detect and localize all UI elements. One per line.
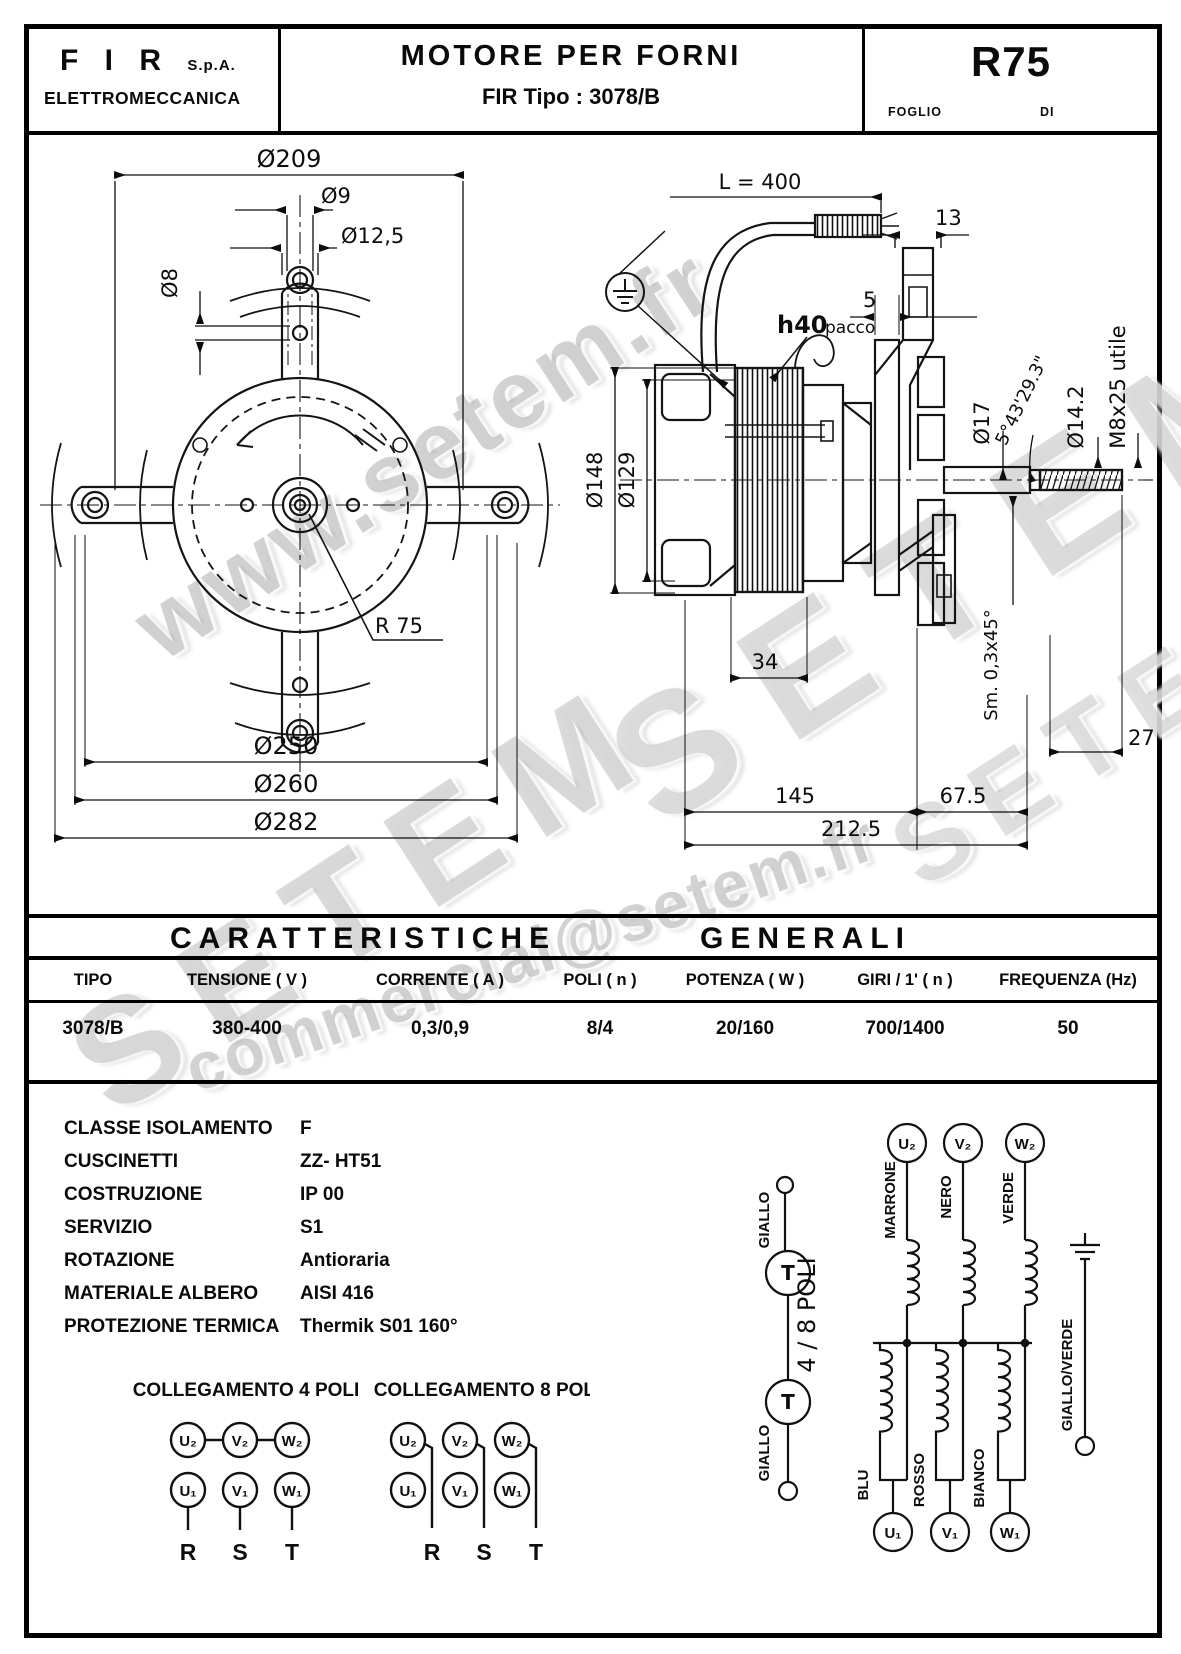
dim-145: 145	[775, 784, 815, 808]
col-frequenza: FREQUENZA (Hz)	[999, 971, 1137, 990]
foglio-label: FOGLIO	[888, 105, 942, 119]
terminal-u1: U₁	[399, 1483, 416, 1500]
pole-label: 4 / 8 POLI	[793, 1257, 821, 1372]
spec-label-costruzione: COSTRUZIONE	[64, 1184, 202, 1206]
val-poli: 8/4	[587, 1018, 613, 1040]
terminal-w1: W₁	[502, 1483, 522, 1500]
col-potenza: POTENZA ( W )	[686, 971, 805, 990]
earth-ground-icon	[606, 231, 725, 385]
val-tensione: 380-400	[212, 1018, 282, 1040]
val-frequenza: 50	[1057, 1018, 1078, 1040]
dim-34: 34	[752, 650, 779, 674]
terminal-w1: W₁	[282, 1483, 302, 1500]
dim-5: 5	[863, 288, 876, 312]
spec-value-servizio: S1	[300, 1217, 323, 1239]
schematic-labels: U₂ V₂ W₂ U₁ V₁ W₁ T T GIALLO GIALLO MARR…	[756, 1136, 1076, 1542]
spec-label-classe: CLASSE ISOLAMENTO	[64, 1118, 273, 1140]
title-8-poli: COLLEGAMENTO 8 POLI	[374, 1380, 590, 1401]
type-model: 3078/B	[589, 84, 660, 109]
dim-d209: Ø209	[257, 145, 322, 173]
col-poli: POLI ( n )	[563, 971, 636, 990]
dim-d250: Ø250	[254, 732, 319, 760]
terminal-w2: W₂	[502, 1433, 523, 1450]
val-potenza: 20/160	[716, 1018, 774, 1040]
table-title-left: CARATTERISTICHE	[170, 922, 556, 956]
wire-verde: VERDE	[1000, 1172, 1017, 1224]
table-top-border	[24, 914, 1162, 918]
technical-drawings: Ø209 Ø9 Ø12,5 Ø8 R 75 Ø250 Ø260 Ø282	[25, 135, 1157, 914]
spec-value-protezione: Thermik S01 160°	[300, 1316, 458, 1338]
company-name: F I R	[60, 44, 170, 77]
dim-smusso: Sm. 0,3x45°	[981, 609, 1002, 721]
connection-diagrams: COLLEGAMENTO 4 POLI COLLEGAMENTO 8 POLI …	[110, 1368, 590, 1583]
terminal-u1: U₁	[179, 1483, 196, 1500]
wire-rosso: ROSSO	[911, 1453, 928, 1508]
terminal-labels: U₂ V₂ W₂ U₁ V₁ W₁ R S T U₂ V₂ W₂ U₁ V₁ W…	[179, 1433, 543, 1565]
terminal-v1: V₁	[232, 1483, 248, 1500]
thermal-t-lower: T	[781, 1390, 795, 1414]
spec-label-albero: MATERIALE ALBERO	[64, 1283, 258, 1305]
dim-h40: h40	[777, 311, 827, 339]
document-code: R75	[866, 38, 1156, 86]
terminal-u2: U₂	[179, 1433, 197, 1450]
terminal-u2: U₂	[898, 1136, 916, 1153]
dim-13: 13	[935, 206, 962, 230]
wire-giallo-verde: GIALLO/VERDE	[1059, 1319, 1076, 1432]
terminal-w2: W₂	[1015, 1136, 1036, 1153]
terminal-u2: U₂	[399, 1433, 417, 1450]
spec-value-albero: AISI 416	[300, 1283, 374, 1305]
wire-giallo-bottom: GIALLO	[756, 1424, 773, 1481]
type-prefix: FIR Tipo :	[482, 84, 589, 109]
dim-d129: Ø129	[615, 452, 639, 509]
dim-r75: R 75	[375, 614, 423, 638]
spec-label-protezione: PROTEZIONE TERMICA	[64, 1316, 279, 1338]
terminal-w1: W₁	[1000, 1525, 1020, 1542]
dim-pacco: pacco	[825, 318, 875, 338]
phase-r: R	[424, 1539, 441, 1565]
dim-d17: Ø17	[970, 401, 994, 444]
table-bottom-border	[24, 1080, 1162, 1084]
dim-d9: Ø9	[321, 184, 351, 208]
dim-d8: Ø8	[158, 268, 182, 298]
table-title-border	[24, 956, 1162, 960]
terminal-u1: U₁	[884, 1525, 901, 1542]
table-header-border	[24, 1000, 1162, 1003]
dim-67-5: 67.5	[940, 784, 987, 808]
dim-d14-2: Ø14.2	[1064, 385, 1088, 448]
dim-27-5: 27.5	[1128, 726, 1157, 750]
winding-schematic: U₂ V₂ W₂ U₁ V₁ W₁ T T GIALLO GIALLO MARR…	[725, 1085, 1160, 1625]
wire-blu: BLU	[855, 1470, 872, 1501]
company-logo: F I R S.p.A.	[60, 44, 236, 78]
col-giri: GIRI / 1' ( n )	[857, 971, 953, 990]
wire-nero: NERO	[938, 1175, 955, 1219]
col-tipo: TIPO	[74, 971, 113, 990]
spec-value-rotazione: Antioraria	[300, 1250, 390, 1272]
phase-s: S	[476, 1539, 491, 1565]
di-label: DI	[1040, 105, 1055, 119]
terminal-v2: V₂	[955, 1136, 972, 1153]
dim-212-5: 212.5	[821, 817, 881, 841]
phase-s: S	[232, 1539, 247, 1565]
col-tensione: TENSIONE ( V )	[187, 971, 307, 990]
val-tipo: 3078/B	[62, 1018, 123, 1040]
wire-bianco: BIANCO	[971, 1448, 988, 1507]
terminal-v1: V₁	[452, 1483, 468, 1500]
header-cell-divider-2	[862, 29, 865, 132]
wire-giallo-top: GIALLO	[756, 1191, 773, 1248]
terminal-v2: V₂	[232, 1433, 249, 1450]
dim-d12-5: Ø12,5	[341, 224, 404, 248]
terminal-w2: W₂	[282, 1433, 303, 1450]
document-title: MOTORE PER FORNI	[280, 40, 862, 73]
dim-l400: L = 400	[719, 170, 802, 194]
val-giri: 700/1400	[865, 1018, 944, 1040]
col-corrente: CORRENTE ( A )	[376, 971, 504, 990]
terminal-v1: V₁	[942, 1525, 958, 1542]
spec-value-cuscinetti: ZZ- HT51	[300, 1151, 381, 1173]
company-subtitle: ELETTROMECCANICA	[44, 88, 241, 109]
table-title-right: GENERALI	[700, 922, 911, 956]
spec-value-classe: F	[300, 1118, 312, 1140]
spec-value-costruzione: IP 00	[300, 1184, 344, 1206]
phase-t: T	[285, 1539, 299, 1565]
dim-m8x25: M8x25 utile	[1106, 325, 1130, 448]
title-4-poli: COLLEGAMENTO 4 POLI	[133, 1380, 360, 1401]
phase-w-winding	[991, 1124, 1044, 1551]
dim-angle: 5°43'29.3"	[991, 353, 1052, 449]
spec-label-cuscinetti: CUSCINETTI	[64, 1151, 178, 1173]
spec-label-servizio: SERVIZIO	[64, 1217, 152, 1239]
phase-r: R	[180, 1539, 197, 1565]
phase-t: T	[529, 1539, 543, 1565]
dim-d148: Ø148	[583, 452, 607, 509]
dim-d282: Ø282	[254, 808, 319, 836]
wire-marrone: MARRONE	[882, 1161, 899, 1239]
dim-d260: Ø260	[254, 770, 319, 798]
val-corrente: 0,3/0,9	[411, 1018, 469, 1040]
datasheet-page: www.setem.fr SETEM SETEM commercial@sete…	[0, 0, 1181, 1654]
spec-label-rotazione: ROTAZIONE	[64, 1250, 174, 1272]
document-subtitle: FIR Tipo : 3078/B	[280, 84, 862, 110]
front-view-drawing	[40, 195, 560, 780]
terminal-v2: V₂	[452, 1433, 469, 1450]
company-suffix: S.p.A.	[187, 57, 236, 74]
